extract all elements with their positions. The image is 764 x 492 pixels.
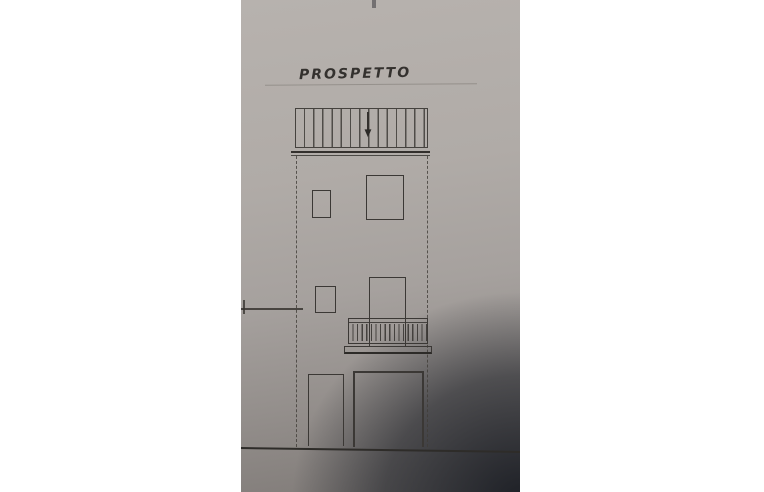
- window-third-floor-large: [366, 175, 404, 220]
- adjacent-building-line: [241, 308, 303, 310]
- balcony-handrail-line: [349, 322, 427, 323]
- ground-line: [241, 447, 520, 453]
- ground-floor-door: [308, 374, 344, 446]
- facade-edge-right-dashed: [427, 156, 428, 447]
- balcony-railing: [348, 318, 428, 344]
- window-second-floor-small: [315, 286, 336, 313]
- roof-slab-line: [291, 151, 430, 156]
- down-arrow-icon: ▼: [363, 128, 373, 141]
- garage-opening: [353, 371, 424, 447]
- adjacent-building-tick: [243, 300, 245, 314]
- pencil-guideline: [265, 83, 477, 85]
- balcony-balusters: [349, 324, 427, 341]
- drawing-title: PROSPETTO: [299, 65, 411, 83]
- window-third-floor-small: [312, 190, 331, 218]
- roof-parapet-railing: [295, 108, 428, 148]
- facade-edge-left-dashed: [296, 156, 297, 447]
- page: { "drawing": { "title": "PROSPETTO" }, "…: [0, 0, 764, 492]
- stray-pencil-mark: [372, 0, 376, 8]
- balcony-slab: [344, 346, 432, 354]
- elevation-drawing-photo: PROSPETTO ▼: [241, 0, 520, 492]
